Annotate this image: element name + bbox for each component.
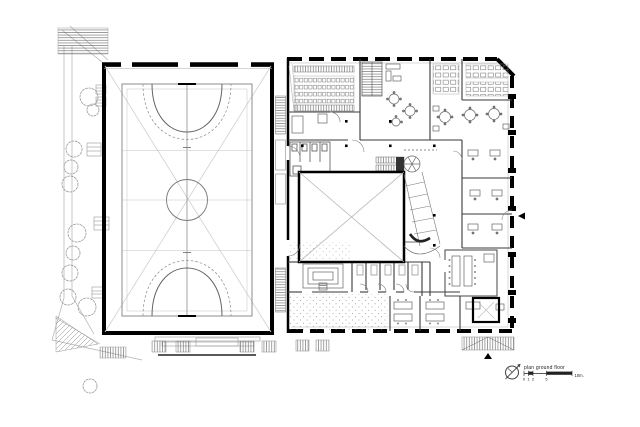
- lobby-furniture: [386, 64, 418, 126]
- legend: plan ground floor 0 1 2 5 10m.: [506, 364, 584, 382]
- right-rooms-furniture: [468, 150, 502, 234]
- scale-tick-5: 5: [545, 376, 548, 381]
- sports-hall: [102, 65, 276, 355]
- stage-steps-room: [303, 264, 343, 290]
- entrance-arrow-up-icon: [484, 353, 492, 359]
- roof-diagonals: [105, 66, 271, 332]
- sports-court: [122, 84, 252, 316]
- office-room: [292, 112, 340, 133]
- porch: [473, 298, 499, 322]
- scale-tick-2: 2: [532, 376, 535, 381]
- scale-bar: 0 1 2 5 10m.: [523, 371, 584, 382]
- round-table: [387, 92, 402, 107]
- floor-plan-sheet: plan ground floor 0 1 2 5 10m.: [0, 0, 640, 427]
- scale-tick-0: 0: [523, 376, 526, 381]
- cafe-tables: [433, 106, 509, 131]
- serving-counter: [376, 150, 437, 171]
- north-arrow-icon: [506, 364, 521, 379]
- auditorium: [289, 64, 354, 111]
- entrance-arrow-left-icon: [518, 213, 525, 220]
- floor-plan-drawing: plan ground floor 0 1 2 5 10m.: [0, 0, 640, 427]
- meeting-room: [445, 250, 497, 296]
- scale-tick-1: 1: [527, 376, 530, 381]
- legend-title: plan ground floor: [524, 365, 565, 371]
- exterior-ramp-bottomleft: [56, 316, 126, 358]
- school-building: [287, 58, 525, 359]
- stair-top: [362, 62, 382, 96]
- round-table: [403, 104, 418, 119]
- bleachers: [152, 337, 276, 355]
- exterior-stair-bottomright: [462, 337, 514, 350]
- path-edge: [52, 46, 64, 340]
- scale-end-label: 10m.: [575, 373, 584, 378]
- connector-strip: [276, 96, 286, 312]
- exterior-stair-topleft: [58, 28, 108, 54]
- exterior-benches: [296, 340, 329, 351]
- spiral-stair: [404, 156, 420, 172]
- classroom-desks: [433, 64, 508, 96]
- landscape-strip: [52, 26, 142, 393]
